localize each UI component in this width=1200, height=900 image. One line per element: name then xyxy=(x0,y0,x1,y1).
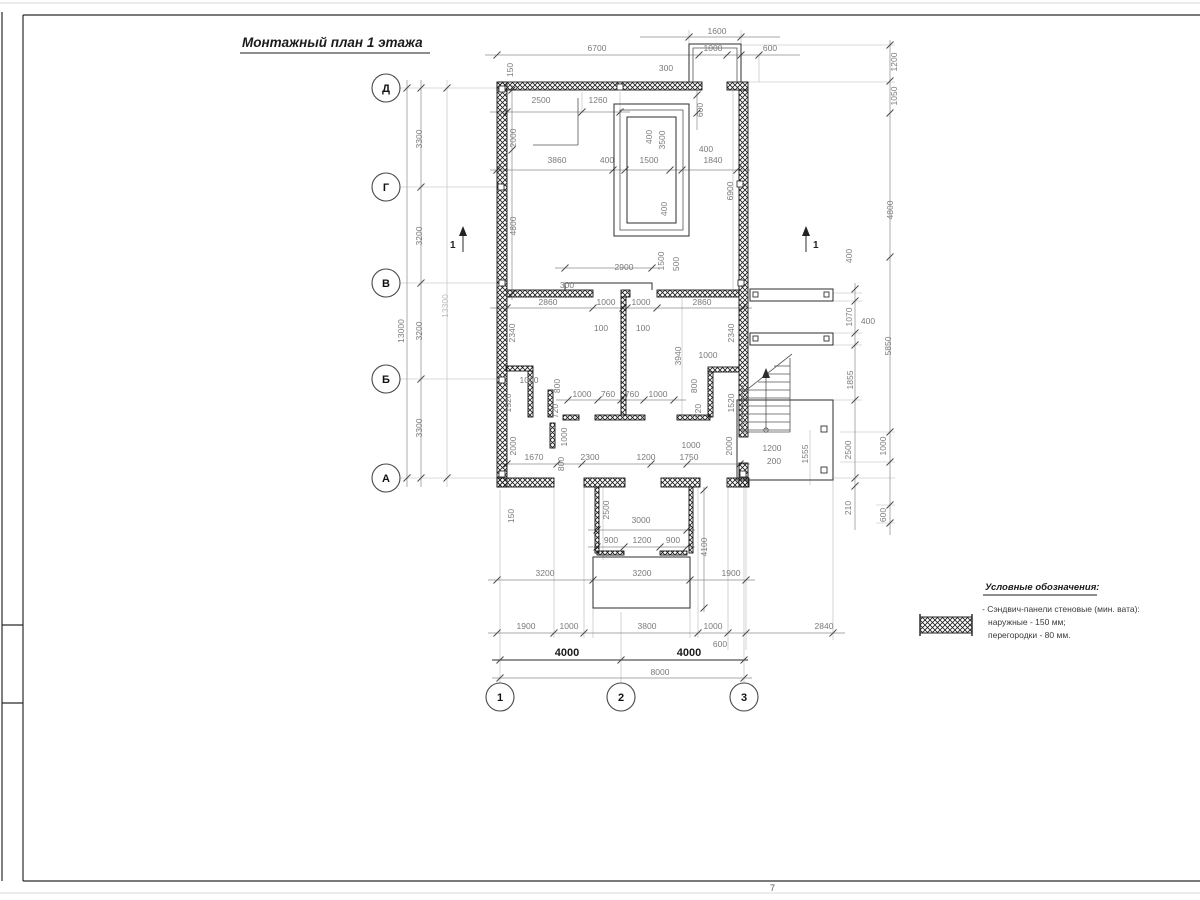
dim-label-bold: 4000 xyxy=(677,647,701,659)
dim-label: 500 xyxy=(671,257,681,271)
dim-label: 3940 xyxy=(673,346,683,365)
legend-wall-symbol xyxy=(920,617,972,633)
partition xyxy=(621,290,630,297)
vestibule-wall xyxy=(597,551,624,555)
dim-label: 800 xyxy=(556,457,566,471)
dim-label: 2000 xyxy=(508,436,518,455)
dim-label: 760 xyxy=(601,389,615,399)
legend-item-line3: перегородки - 80 мм. xyxy=(988,630,1071,640)
dim-label: 3300 xyxy=(414,418,424,437)
dim-label: 8000 xyxy=(651,667,670,677)
dim-label: 1000 xyxy=(878,436,888,455)
dim-label: 2900 xyxy=(615,262,634,272)
vestibule-wall xyxy=(660,551,687,555)
dim-label: 900 xyxy=(666,535,680,545)
dim-label: 400 xyxy=(659,202,669,216)
dim-label-bold: 4000 xyxy=(555,647,579,659)
dim-label: 100 xyxy=(594,323,608,333)
dim-label: 3800 xyxy=(638,621,657,631)
dim-label: 300 xyxy=(659,63,673,73)
dim-label: 2340 xyxy=(726,323,736,342)
staircase xyxy=(742,354,792,432)
dim-label: 2860 xyxy=(693,297,712,307)
dim-label: 1200 xyxy=(637,452,656,462)
dim-label: 1200 xyxy=(763,443,782,453)
legend-title: Условные обозначения: xyxy=(985,582,1099,593)
dim-label: 400 xyxy=(600,155,614,165)
wall-segment xyxy=(727,82,748,90)
dim-label: 720 xyxy=(550,404,560,418)
wall-segment xyxy=(497,82,702,90)
dim-label: 400 xyxy=(844,249,854,263)
dim-label: 200 xyxy=(767,456,781,466)
niche-outline xyxy=(565,283,652,290)
dim-label: 3200 xyxy=(414,226,424,245)
axis-row-label: Б xyxy=(382,374,390,386)
dim-label: 3860 xyxy=(548,155,567,165)
dim-label: 1000 xyxy=(520,375,539,385)
dim-label: 1000 xyxy=(573,389,592,399)
wall-segment xyxy=(727,478,749,487)
dim-label: 1000 xyxy=(649,389,668,399)
wall-segment xyxy=(497,478,554,487)
dim-label: 1520 xyxy=(503,393,513,412)
dim-label: 600 xyxy=(695,103,705,117)
partition xyxy=(506,366,533,371)
dim-label: 300 xyxy=(560,280,574,290)
dim-label: 2840 xyxy=(815,621,834,631)
dimension-labels: 1600 6700 1000 600 300 150 2500 1260 200… xyxy=(396,26,899,677)
partition xyxy=(708,367,739,372)
closet-partition xyxy=(533,98,578,145)
dim-label: 1200 xyxy=(633,535,652,545)
terrace-outline xyxy=(737,400,833,480)
dim-label: 1520 xyxy=(726,393,736,412)
wall-segment xyxy=(661,478,700,487)
dim-label: 1670 xyxy=(525,452,544,462)
dim-label: 400 xyxy=(644,130,654,144)
legend-item-line2: наружные - 150 мм; xyxy=(988,617,1066,627)
extension-lines xyxy=(400,30,895,683)
dim-label: 2500 xyxy=(532,95,551,105)
thin-outlines xyxy=(533,44,833,608)
dim-label: 1000 xyxy=(704,621,723,631)
dim-label: 1750 xyxy=(680,452,699,462)
partition xyxy=(595,415,645,420)
beam-upper xyxy=(750,289,833,301)
drawing-sheet: 7 xyxy=(0,0,1200,900)
sheet-mark: 7 xyxy=(770,883,775,893)
dim-label: 1200 xyxy=(889,52,899,71)
dim-label: 1855 xyxy=(845,370,855,389)
legend-item-line1: - Сэндвич-панели стеновые (мин. вата): xyxy=(982,604,1140,614)
dim-label: 1000 xyxy=(560,621,579,631)
dim-label: 800 xyxy=(689,379,699,393)
axis-row-label: А xyxy=(382,473,390,485)
dim-label: 900 xyxy=(604,535,618,545)
axis-col-label: 1 xyxy=(497,692,503,704)
page-title: Монтажный план 1 этажа xyxy=(242,35,423,50)
dim-label: 2000 xyxy=(724,436,734,455)
dim-label: 1500 xyxy=(640,155,659,165)
dim-label: 400 xyxy=(699,144,713,154)
dim-label: 2300 xyxy=(581,452,600,462)
dim-label: 100 xyxy=(636,323,650,333)
dim-label: 4100 xyxy=(699,537,709,556)
dim-label: 1000 xyxy=(699,350,718,360)
dim-label: 2500 xyxy=(601,500,611,519)
sheet-frame: 7 xyxy=(0,3,1200,893)
partition xyxy=(708,372,713,417)
dim-label: 2340 xyxy=(507,323,517,342)
dim-label: 1000 xyxy=(682,440,701,450)
dim-label: 800 xyxy=(552,379,562,393)
vestibule-wall xyxy=(595,487,599,553)
axis-col-label: 3 xyxy=(741,692,747,704)
partition xyxy=(507,290,593,297)
dim-label: 1840 xyxy=(704,155,723,165)
wall-segment xyxy=(584,478,625,487)
dim-label: 1900 xyxy=(517,621,536,631)
dim-label: 1000 xyxy=(704,43,723,53)
dim-label: 3500 xyxy=(657,130,667,149)
dim-label: 6900 xyxy=(725,181,735,200)
dim-label: 600 xyxy=(763,43,777,53)
dim-label: 1500 xyxy=(656,251,666,270)
partition xyxy=(563,415,579,420)
axis-row-label: В xyxy=(382,278,390,290)
dim-label: 210 xyxy=(843,501,853,515)
dim-label: 600 xyxy=(713,639,727,649)
vestibule-wall xyxy=(689,487,693,553)
axis-col-markers: 1 2 3 xyxy=(486,683,758,711)
dim-label: 1555 xyxy=(800,444,810,463)
dim-label: 4800 xyxy=(508,216,518,235)
roof-bump-inner xyxy=(693,48,737,82)
section-mark-label: 1 xyxy=(450,240,456,251)
dim-label: 1260 xyxy=(589,95,608,105)
dim-label: 6700 xyxy=(588,43,607,53)
dim-label: 1050 xyxy=(889,86,899,105)
dim-label: 3300 xyxy=(414,129,424,148)
axis-row-label: Д xyxy=(382,83,390,95)
axis-row-label: Г xyxy=(383,182,390,194)
dim-label: 3000 xyxy=(632,515,651,525)
floor-plan-drawing: 7 xyxy=(0,0,1200,900)
dim-label: 2000 xyxy=(508,128,518,147)
dim-label: 13000 xyxy=(396,319,406,343)
dim-label: 720 xyxy=(693,404,703,418)
dim-label: 2500 xyxy=(843,440,853,459)
dim-label: 5850 xyxy=(883,336,893,355)
dim-label: 150 xyxy=(505,63,515,77)
beam-lower xyxy=(750,333,833,345)
dim-label: 400 xyxy=(861,316,875,326)
axis-col-label: 2 xyxy=(618,692,624,704)
dim-label: 3200 xyxy=(536,568,555,578)
dim-label: 4800 xyxy=(885,200,895,219)
partition xyxy=(657,290,739,297)
section-mark-label: 1 xyxy=(813,240,819,251)
dim-label: 1070 xyxy=(844,307,854,326)
dim-label: 600 xyxy=(878,508,888,522)
dim-label: 1000 xyxy=(632,297,651,307)
legend: Условные обозначения: - Сэндвич-панели с… xyxy=(920,582,1140,640)
dim-label: 1000 xyxy=(597,297,616,307)
dim-label: 1000 xyxy=(559,427,569,446)
dim-label: 150 xyxy=(506,509,516,523)
dim-label: 3200 xyxy=(414,321,424,340)
dim-label: 1900 xyxy=(722,568,741,578)
porch-outline xyxy=(593,557,690,608)
dim-label: 760 xyxy=(625,389,639,399)
dim-label: 2860 xyxy=(539,297,558,307)
axis-row-markers: Д Г В Б А xyxy=(372,74,400,492)
dim-label: 3200 xyxy=(633,568,652,578)
dim-label: 1600 xyxy=(708,26,727,36)
partition xyxy=(550,423,555,448)
dim-label: 13300 xyxy=(440,294,450,318)
wall-segment xyxy=(739,90,748,437)
stair-direction-arrow xyxy=(762,368,770,378)
drawing-title: Монтажный план 1 этажа xyxy=(240,35,430,53)
